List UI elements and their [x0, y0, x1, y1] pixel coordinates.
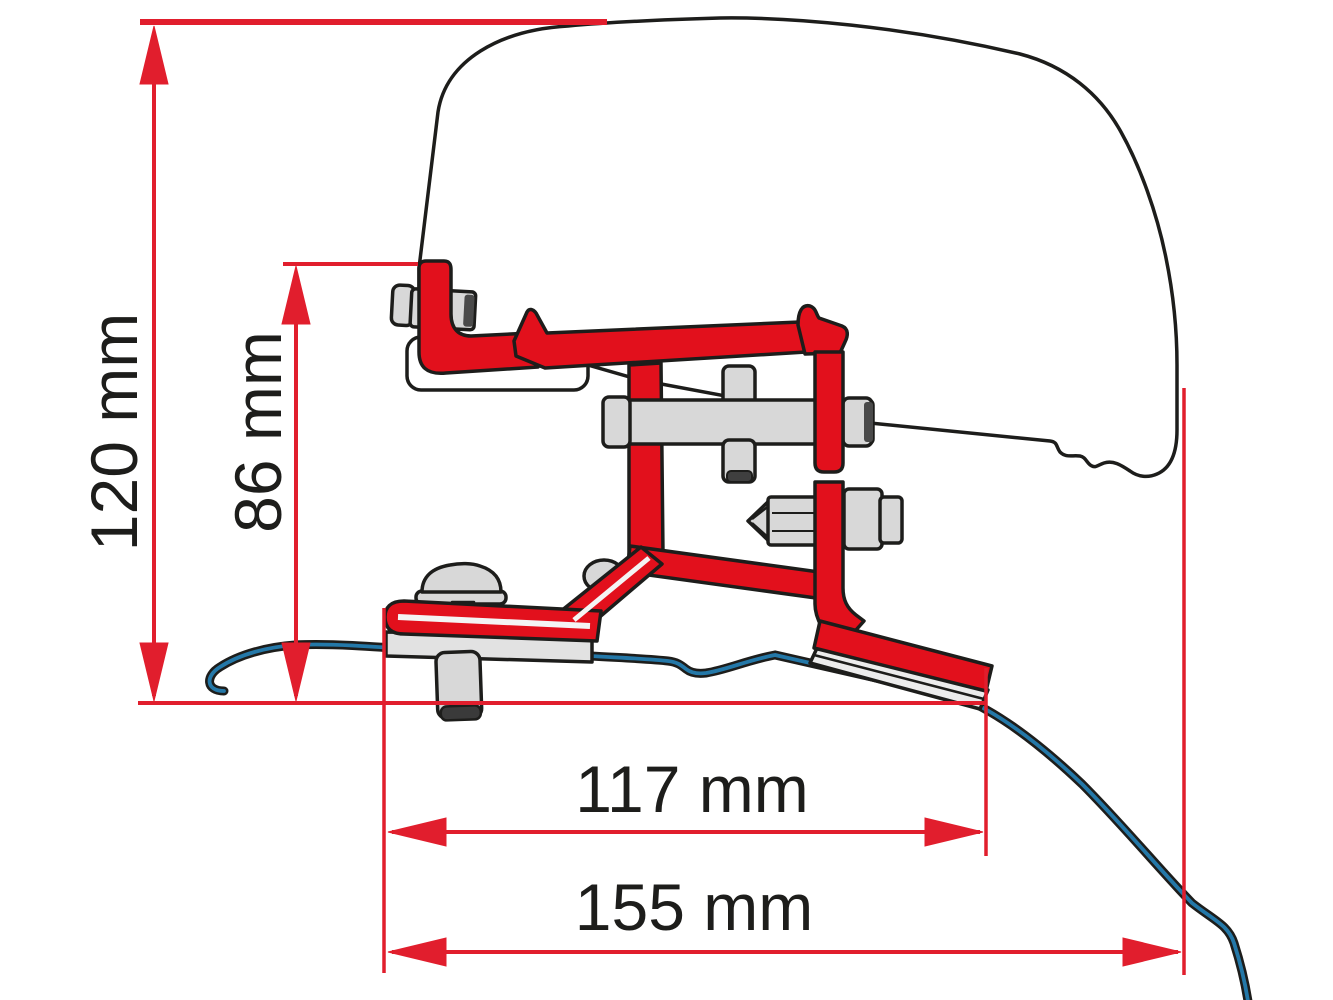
top-bolt-end: [463, 294, 475, 326]
screw-end-cap: [880, 497, 902, 543]
screw-block: [844, 489, 882, 549]
arrowhead-down: [140, 643, 168, 701]
cross-bar-right-edge: [864, 402, 873, 442]
arrowhead-left: [388, 818, 446, 846]
arrowhead-up: [140, 26, 168, 84]
label-117mm: 117 mm: [575, 752, 809, 826]
dome-screw-head: [422, 564, 501, 592]
label-120mm: 120 mm: [77, 313, 151, 551]
bracket-left-leg: [629, 363, 663, 564]
bracket-bottom-bar: [627, 546, 819, 598]
arrowhead-down: [282, 643, 310, 701]
cross-bar-stub-bottom-cap: [727, 471, 752, 482]
cross-bar-left-cap: [603, 397, 630, 447]
base-bolt-tip: [441, 705, 481, 720]
arrowhead-left: [388, 938, 446, 966]
label-155mm: 155 mm: [575, 870, 813, 944]
arrowhead-right: [1123, 938, 1181, 966]
arrowhead-right: [925, 818, 983, 846]
bracket-right-leg-upper: [815, 352, 843, 472]
diagram-stage: 120 mm 86 mm 117 mm 155 mm: [0, 0, 1333, 1000]
label-86mm: 86 mm: [221, 331, 295, 533]
arrowhead-up: [282, 266, 310, 324]
dimension-diagram: 120 mm 86 mm 117 mm 155 mm: [0, 0, 1333, 1000]
bracket-rear-foot: [810, 621, 992, 709]
base-bolt: [436, 651, 482, 720]
